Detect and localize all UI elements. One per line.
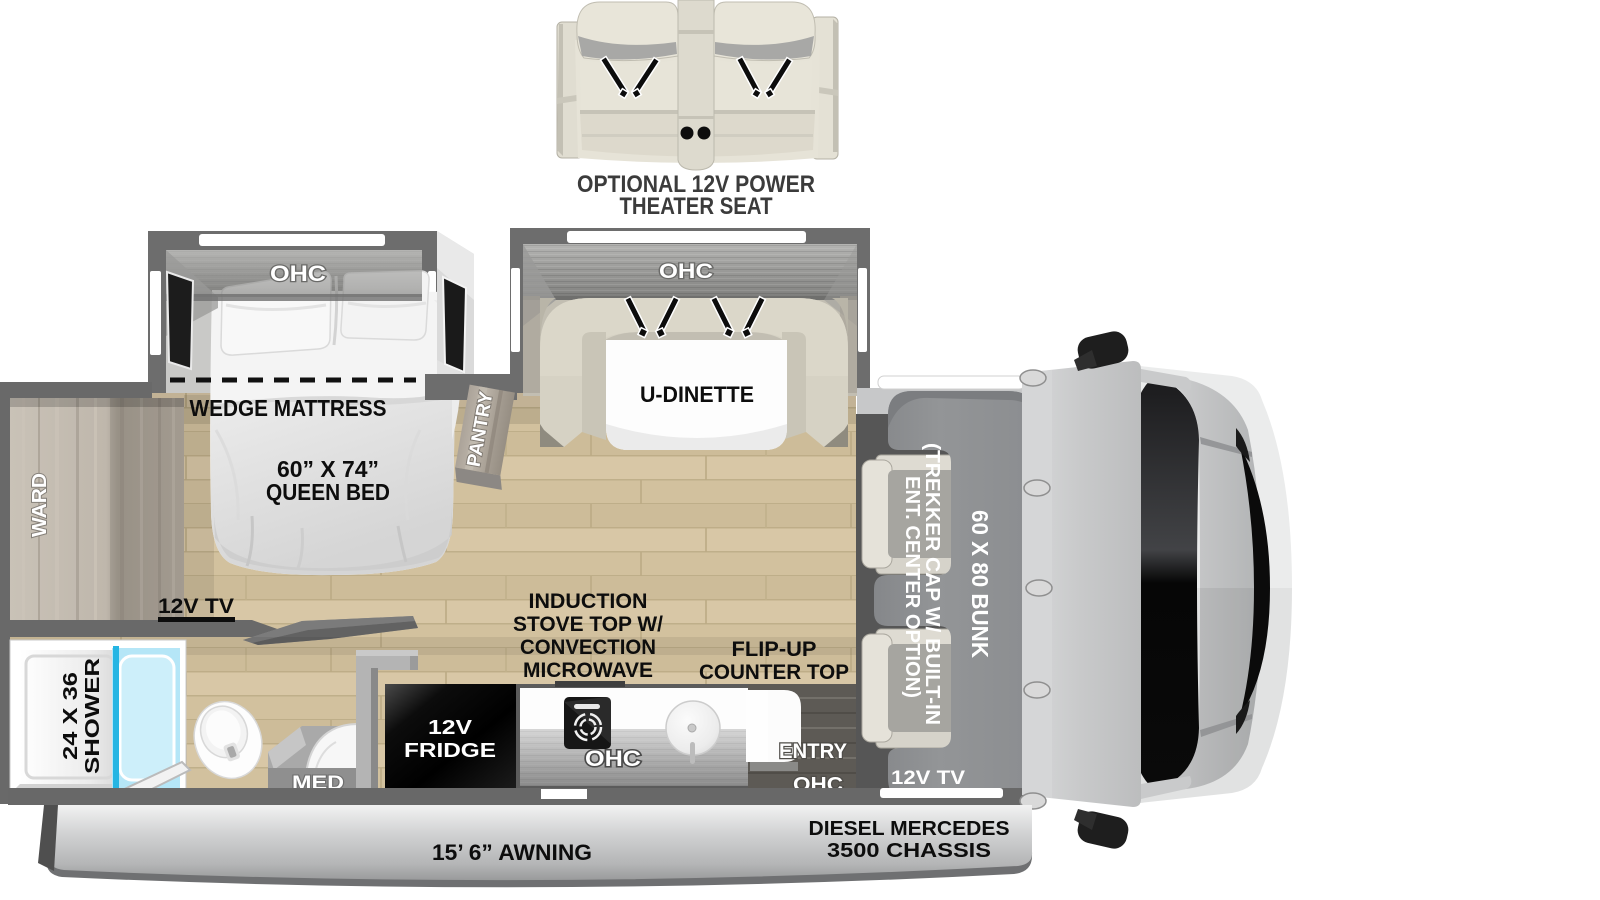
svg-text:OHC: OHC bbox=[585, 746, 641, 771]
svg-text:WARD: WARD bbox=[29, 473, 51, 537]
svg-text:WEDGE MATTRESS: WEDGE MATTRESS bbox=[190, 395, 387, 421]
svg-text:THEATER SEAT: THEATER SEAT bbox=[620, 193, 773, 220]
svg-text:FLIP-UP: FLIP-UP bbox=[732, 638, 817, 661]
svg-text:ENT. CENTER OPTION): ENT. CENTER OPTION) bbox=[901, 476, 923, 698]
svg-text:ENTRY: ENTRY bbox=[779, 740, 847, 763]
svg-text:12V TV: 12V TV bbox=[891, 768, 965, 789]
svg-text:12V TV: 12V TV bbox=[158, 595, 234, 618]
svg-text:60 X 80 BUNK: 60 X 80 BUNK bbox=[967, 510, 993, 658]
svg-text:U-DINETTE: U-DINETTE bbox=[640, 382, 754, 407]
svg-text:DIESEL MERCEDES: DIESEL MERCEDES bbox=[809, 818, 1010, 840]
svg-text:QUEEN BED: QUEEN BED bbox=[266, 479, 390, 505]
svg-text:INDUCTION: INDUCTION bbox=[529, 590, 648, 613]
svg-text:OHC: OHC bbox=[659, 260, 713, 283]
svg-text:SHOWER: SHOWER bbox=[82, 657, 104, 774]
svg-text:15’ 6” AWNING: 15’ 6” AWNING bbox=[432, 840, 592, 865]
svg-text:24 X 36: 24 X 36 bbox=[60, 672, 82, 760]
svg-text:OHC: OHC bbox=[270, 261, 326, 286]
svg-text:FRIDGE: FRIDGE bbox=[404, 740, 496, 762]
svg-text:3500 CHASSIS: 3500 CHASSIS bbox=[827, 840, 991, 862]
svg-text:STOVE TOP W/: STOVE TOP W/ bbox=[513, 613, 663, 636]
svg-text:CONVECTION: CONVECTION bbox=[520, 636, 656, 659]
svg-text:COUNTER TOP: COUNTER TOP bbox=[699, 661, 849, 684]
svg-text:(TREKKER CAP W/ BUILT-IN: (TREKKER CAP W/ BUILT-IN bbox=[921, 443, 943, 725]
svg-text:12V: 12V bbox=[428, 717, 473, 739]
svg-text:MICROWAVE: MICROWAVE bbox=[523, 659, 653, 682]
